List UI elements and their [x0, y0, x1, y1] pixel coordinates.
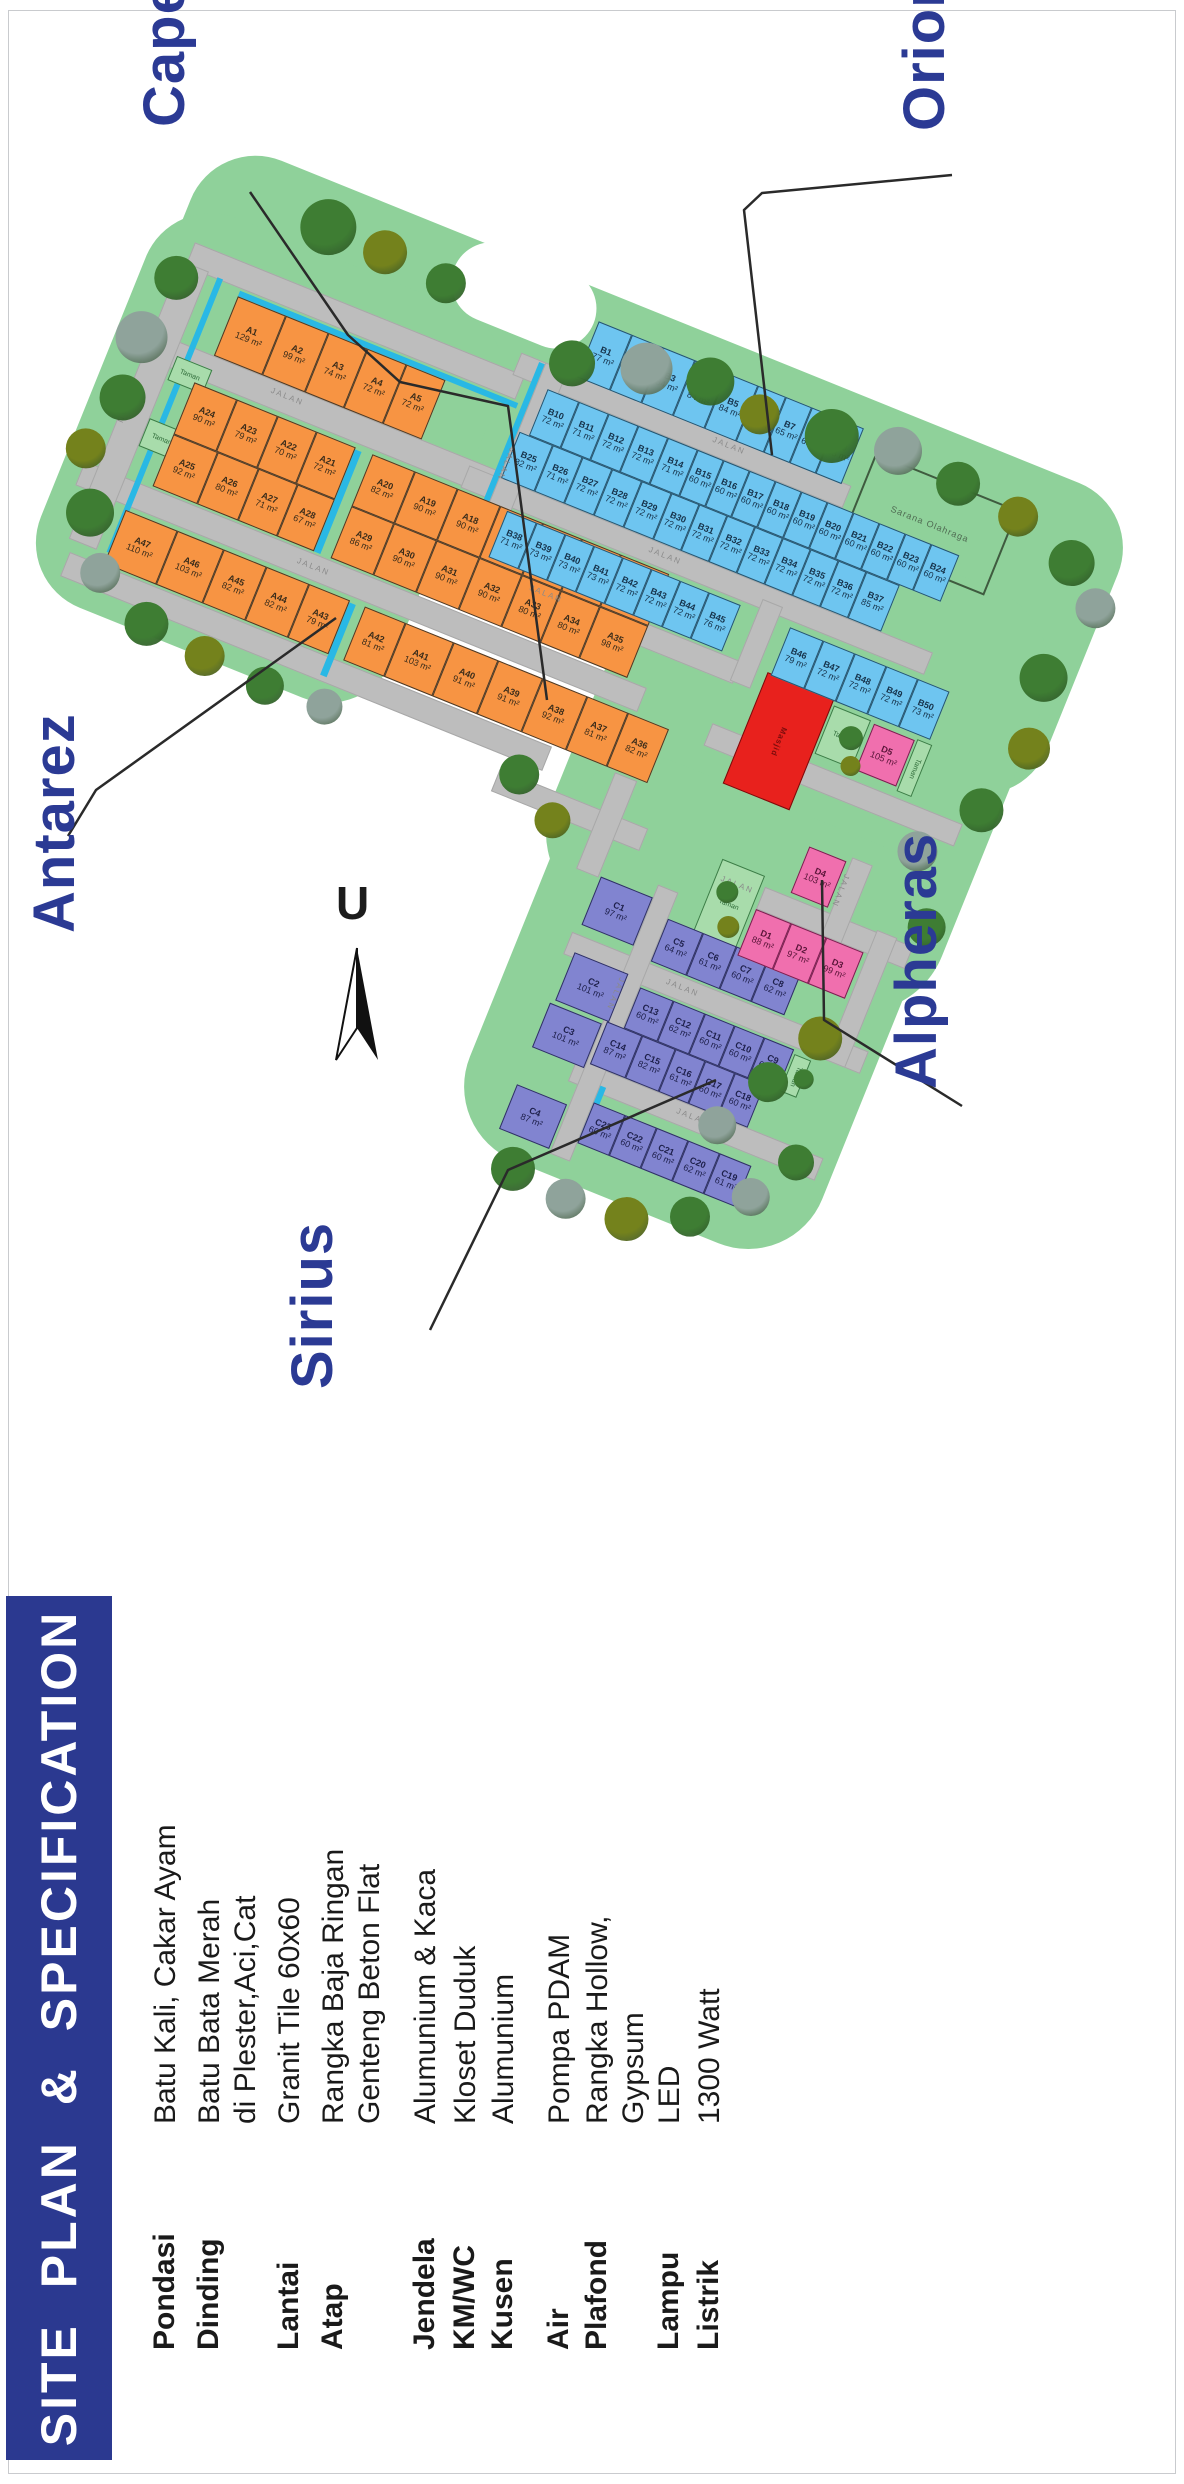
lot-area: 129 m²	[233, 330, 263, 349]
lot-area: 64 m²	[663, 943, 688, 960]
spec-label-pondasi: Pondasi	[148, 2150, 182, 2350]
spec-label-jendela: Jendela	[408, 2150, 442, 2350]
spec-value: Alumunium	[486, 1564, 522, 2124]
spec-label-atap: Atap	[316, 2150, 350, 2350]
lot-area: 88 m²	[750, 935, 775, 952]
spec-label-plafond: Plafond	[580, 2150, 614, 2350]
lot-area: 65 m²	[774, 426, 799, 443]
spec-banner: SITE PLAN & SPECIFICATION	[6, 1596, 112, 2460]
spec-value: Pompa PDAM	[542, 1564, 578, 2124]
lot-area: 61 m²	[697, 957, 722, 974]
lot-area: 103 m²	[802, 872, 832, 891]
spec-section: SITE PLAN & SPECIFICATION PondasiBatu Ka…	[0, 1544, 740, 2484]
cluster-label-antarez: Antarez	[21, 713, 88, 933]
lot-area: 74 m²	[322, 366, 347, 383]
lot-area: 97 m²	[603, 907, 628, 924]
park-label: Taman	[907, 757, 921, 779]
lot-area: 72 m²	[400, 398, 425, 415]
spec-value: Batu Kali, Cakar Ayam	[148, 1564, 184, 2124]
cluster-label-orion: Orion	[891, 0, 958, 131]
lot-area: 99 m²	[821, 964, 846, 981]
park-label: Taman	[179, 368, 201, 382]
spec-value: LED	[652, 1564, 688, 2124]
spec-label-lampu: Lampu	[652, 2150, 686, 2350]
lot-area: 60 m²	[730, 970, 755, 987]
spec-value: Granit Tile 60x60	[272, 1564, 308, 2124]
spec-label-kusen: Kusen	[486, 2150, 520, 2350]
cluster-label-sirius: Sirius	[279, 1222, 346, 1389]
spec-value: Rangka Baja Ringan Genteng Beton Flat	[316, 1564, 388, 2124]
north-label: U	[336, 876, 369, 930]
spec-value: Rangka Hollow, Gypsum	[580, 1564, 652, 2124]
spec-label-listrik: Listrik	[692, 2150, 726, 2350]
mosque-label: Masjid	[769, 725, 789, 757]
spec-value: Kloset Duduk	[448, 1564, 484, 2124]
spec-value: Batu Bata Merah di Plester,Aci,Cat	[192, 1564, 264, 2124]
cluster-label-alpheras: Alpheras	[883, 833, 950, 1089]
lot-area: 101 m²	[550, 1030, 580, 1049]
lot-area: 84 m²	[717, 403, 742, 420]
spec-banner-title: SITE PLAN & SPECIFICATION	[30, 1610, 88, 2446]
spec-label-air: Air	[542, 2150, 576, 2350]
spec-value: Alumunium & Kaca	[408, 1564, 444, 2124]
lot-area: 87 m²	[519, 1112, 544, 1129]
lot-area: 62 m²	[762, 983, 787, 1000]
spec-label-kmwc: KM/WC	[448, 2150, 482, 2350]
spec-value: 1300 Watt	[692, 1564, 728, 2124]
spec-label-dinding: Dinding	[192, 2150, 226, 2350]
lot-area: 97 m²	[785, 949, 810, 966]
flyer-page: Sarana OlahragaTamanTamanTamanTamanTaman…	[0, 0, 1184, 2484]
lot-area: 105 m²	[869, 750, 899, 769]
cluster-label-capella: Capella	[131, 0, 198, 127]
spec-label-lantai: Lantai	[272, 2150, 306, 2350]
lot-area: 99 m²	[281, 350, 306, 367]
lot-area: 101 m²	[575, 982, 605, 1001]
lot-area: 72 m²	[361, 382, 386, 399]
